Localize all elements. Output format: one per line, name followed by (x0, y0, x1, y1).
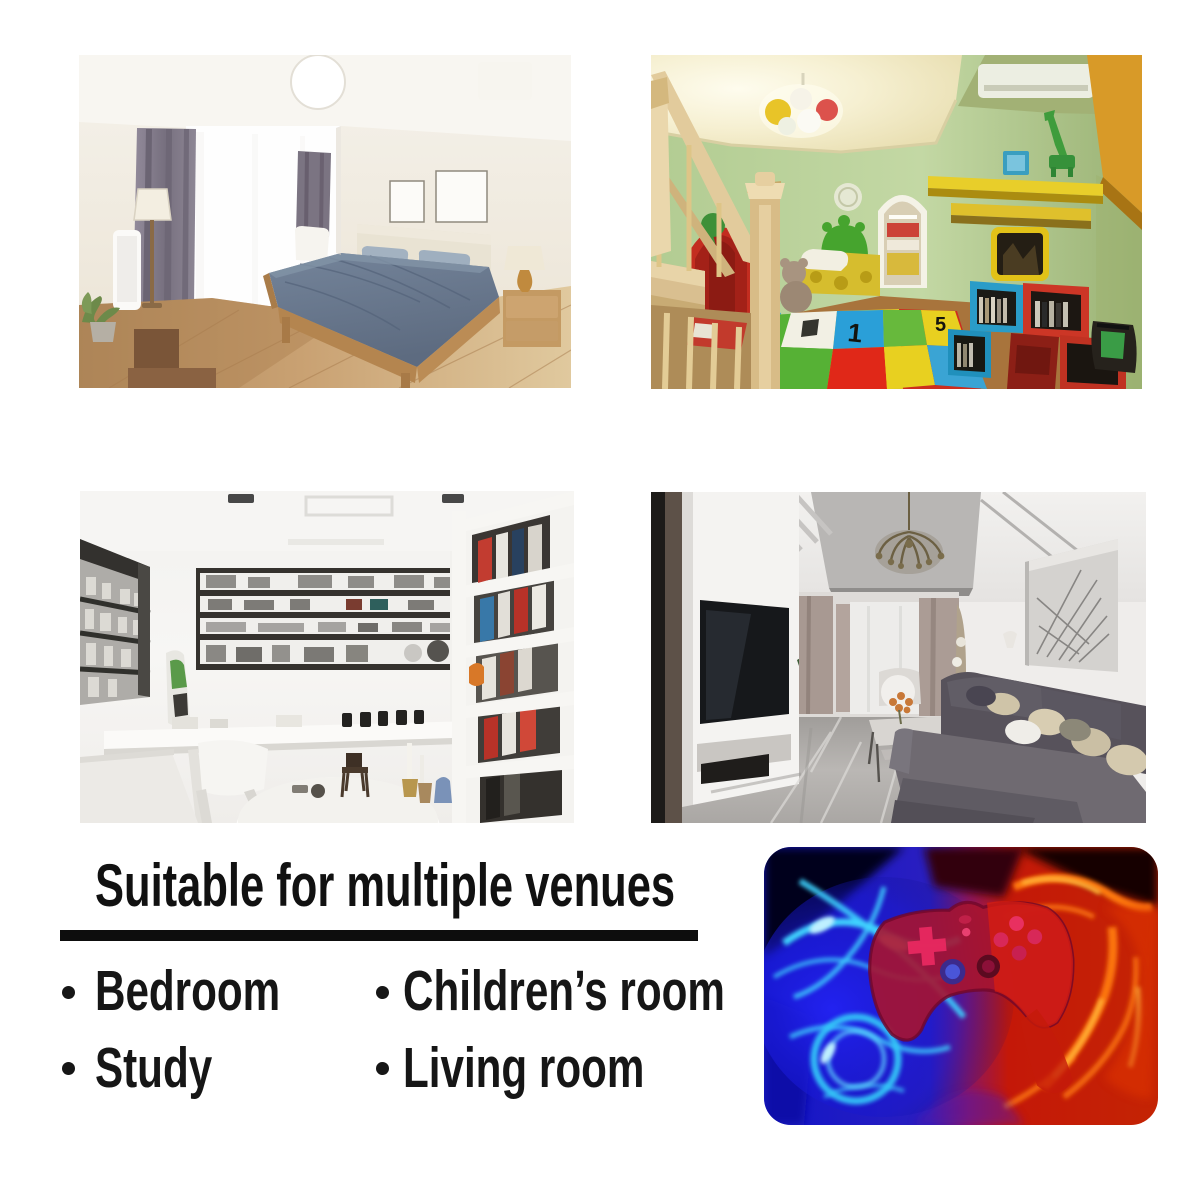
svg-text:5: 5 (935, 314, 946, 336)
